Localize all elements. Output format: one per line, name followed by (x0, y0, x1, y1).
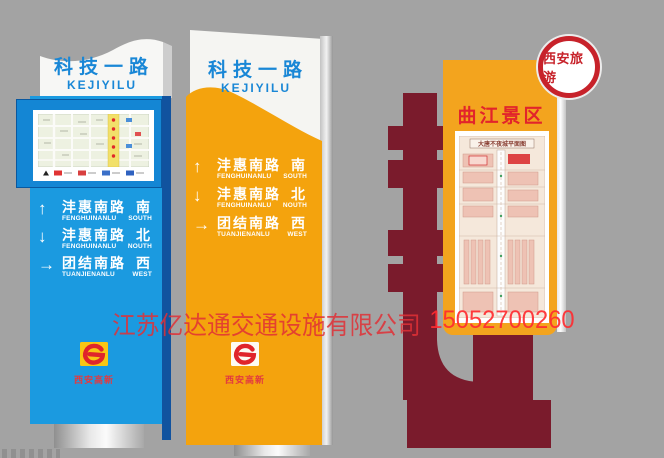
middle-pillar-body (183, 83, 322, 445)
road-name-en: TUANJIENANLU (217, 231, 270, 239)
direction-cn: 南 (291, 158, 307, 173)
gaoxin-emblem-icon (231, 342, 259, 366)
road-name-en: FENGHUINANLU (217, 173, 271, 181)
arrow-up-icon: ↑ (38, 200, 62, 219)
direction-cn: 西 (136, 256, 152, 271)
map-title: 大唐不夜城平面图 (478, 140, 526, 148)
right-pillar-block (388, 160, 443, 188)
right-pillar-block (388, 126, 443, 150)
route-row-text: 沣惠南路南 FENGHUINANLUSOUTH (217, 158, 307, 182)
right-pillar-base (407, 400, 551, 448)
arrow-down-icon: ↓ (38, 228, 62, 247)
middle-pillar-base (234, 444, 310, 456)
xian-gaoxin-logo: 西安高新 (72, 342, 116, 386)
road-name-cn: 团结南路 (62, 256, 126, 271)
direction-cn: 北 (291, 187, 307, 202)
route-row: → 团结南路西 TUANJIENANLUWEST (193, 216, 307, 240)
road-name-cn: 沣惠南路 (62, 200, 126, 215)
direction-cn: 北 (136, 228, 152, 243)
left-pillar-header: 科技一路 KEJIYILU (38, 57, 164, 92)
right-pillar-arm (403, 382, 533, 400)
xian-tourism-badge: 西安旅游 (538, 36, 600, 98)
left-map-legend (38, 168, 149, 178)
gaoxin-emblem-icon (80, 342, 108, 366)
watermark-company: 江苏亿达通交通设施有限公司 (112, 306, 421, 342)
logo-text: 西安高新 (222, 373, 268, 386)
middle-street-name-en: KEJIYILU (192, 82, 318, 95)
direction-en: WEST (132, 271, 152, 279)
road-name-cn: 沣惠南路 (217, 187, 281, 202)
left-pillar-base (54, 424, 144, 448)
arrow-right-icon: → (38, 256, 62, 275)
logo-text: 西安高新 (72, 373, 116, 386)
xian-gaoxin-logo: 西安高新 (222, 342, 268, 386)
road-name-cn: 沣惠南路 (217, 158, 281, 173)
left-street-name-cn: 科技一路 (38, 57, 164, 79)
signage-design-canvas: 科技一路 KEJIYILU (0, 0, 664, 458)
right-pillar-block (388, 230, 443, 256)
direction-en: WEST (287, 231, 307, 239)
scenic-area-title: 曲江景区 (443, 101, 557, 128)
route-row: ↑ 沣惠南路南 FENGHUINANLUSOUTH (193, 158, 307, 182)
right-pillar-block (388, 264, 443, 292)
route-row-text: 沣惠南路南 FENGHUINANLUSOUTH (62, 200, 152, 224)
road-name-cn: 团结南路 (217, 216, 281, 231)
route-row: → 团结南路西 TUANJIENANLUWEST (38, 256, 152, 280)
route-row: ↑ 沣惠南路南 FENGHUINANLUSOUTH (38, 200, 152, 224)
route-row-text: 沣惠南路北 FENGHUINANLUNOUTH (62, 228, 152, 252)
route-row: ↓ 沣惠南路北 FENGHUINANLUNOUTH (193, 187, 307, 211)
direction-en: NOUTH (283, 202, 307, 210)
left-street-map (38, 114, 149, 167)
right-pillar-stem (473, 335, 533, 385)
direction-en: SOUTH (283, 173, 307, 181)
arrow-down-icon: ↓ (193, 187, 217, 206)
route-row-text: 团结南路西 TUANJIENANLUWEST (217, 216, 307, 240)
road-name-en: FENGHUINANLU (217, 202, 271, 210)
route-row-text: 沣惠南路北 FENGHUINANLUNOUTH (217, 187, 307, 211)
right-pillar-fillet (435, 340, 480, 384)
middle-pillar-header: 科技一路 KEJIYILU (192, 60, 318, 95)
left-street-name-en: KEJIYILU (38, 79, 164, 92)
middle-street-name-cn: 科技一路 (192, 60, 318, 82)
corner-watermark-remnant (2, 449, 60, 458)
arrow-right-icon: → (193, 216, 217, 235)
route-row: ↓ 沣惠南路北 FENGHUINANLUNOUTH (38, 228, 152, 252)
road-name-en: FENGHUINANLU (62, 243, 116, 251)
scenic-area-map: 大唐不夜城平面图 (459, 136, 545, 318)
route-row-text: 团结南路西 TUANJIENANLUWEST (62, 256, 152, 280)
watermark-phone: 15052700260 (429, 306, 574, 342)
road-name-cn: 沣惠南路 (62, 228, 126, 243)
arrow-up-icon: ↑ (193, 158, 217, 177)
company-watermark: 江苏亿达通交通设施有限公司 15052700260 (112, 306, 575, 342)
road-name-en: FENGHUINANLU (62, 215, 116, 223)
direction-cn: 南 (136, 200, 152, 215)
direction-en: SOUTH (128, 215, 152, 223)
direction-en: NOUTH (128, 243, 152, 251)
right-sign-side (557, 64, 566, 332)
road-name-en: TUANJIENANLU (62, 271, 115, 279)
left-pillar-side (162, 96, 171, 440)
direction-cn: 西 (291, 216, 307, 231)
